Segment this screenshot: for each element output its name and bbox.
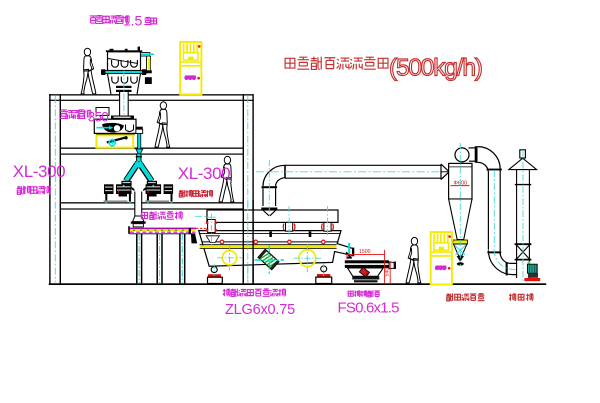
svg-text:1500: 1500 [359,249,371,255]
svg-text:ZLG6x0.75: ZLG6x0.75 [225,302,295,318]
svg-text:540: 540 [385,268,391,277]
svg-text:(500kg/h): (500kg/h) [389,54,482,81]
svg-text:1.5: 1.5 [123,13,143,29]
svg-text:FS0.6x1.5: FS0.6x1.5 [338,299,400,316]
svg-text:XL-300: XL-300 [13,162,65,181]
svg-text:350: 350 [88,109,108,124]
svg-text:XL-300: XL-300 [178,164,230,183]
